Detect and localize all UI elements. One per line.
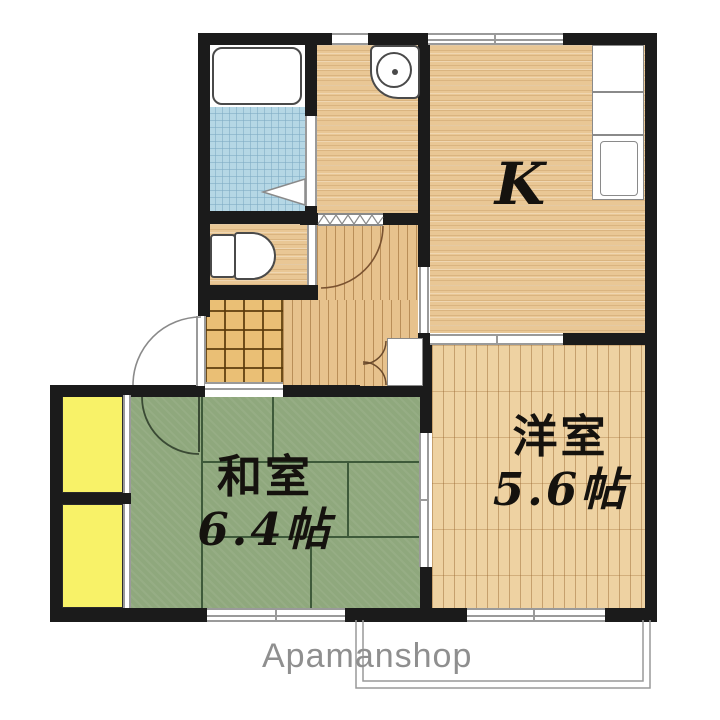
- entry-door-swing-arc: [133, 317, 201, 385]
- bathroom-floor: [208, 107, 305, 212]
- entry-door-leaf: [196, 316, 206, 386]
- apamanshop-watermark: Apamanshop: [262, 637, 472, 676]
- wall-segment: [198, 33, 210, 317]
- window-center-tick: [533, 610, 535, 620]
- bath-door-opening: [305, 116, 317, 206]
- window: [332, 33, 368, 45]
- toilet-tank: [210, 234, 236, 278]
- wall-segment: [198, 285, 318, 300]
- kitchen-stove: [600, 141, 638, 196]
- closet-lower: [62, 504, 123, 608]
- window: [467, 608, 605, 622]
- japanese-room-label: 和室 6.4帖: [150, 450, 380, 556]
- kitchen-door: [419, 267, 429, 333]
- toilet-door: [307, 225, 317, 285]
- western-room-label: 洋室 5.6帖: [448, 410, 673, 516]
- kitchen-label-text: K: [495, 150, 545, 218]
- sliding-door-kitchen-western: [430, 334, 563, 345]
- wall-segment: [420, 567, 432, 610]
- sliding-door-center-tick: [421, 499, 427, 501]
- window: [207, 608, 345, 622]
- closet-fusuma-upper: [123, 395, 131, 493]
- sliding-door-center-tick: [496, 336, 498, 343]
- closet-upper: [62, 395, 123, 493]
- bathtub: [212, 47, 302, 105]
- washbasin-drain: [392, 69, 398, 75]
- wall-segment: [563, 333, 657, 345]
- accordion-door: [318, 213, 383, 226]
- western-room-name: 洋室: [448, 410, 673, 463]
- closet-fusuma-lower: [123, 504, 131, 608]
- wall-segment: [355, 386, 432, 397]
- floor-plan: K 和室 6.4帖 洋室 5.6帖 Apamanshop: [0, 0, 720, 720]
- counter-divider: [593, 91, 643, 93]
- hall-storage-nook: [387, 338, 423, 386]
- wall-segment: [345, 608, 467, 622]
- wall-segment: [605, 608, 657, 622]
- wall-segment: [50, 493, 131, 504]
- window-sash-line: [467, 615, 605, 617]
- western-room-size: 5.6帖: [448, 463, 673, 516]
- window-center-tick: [275, 610, 277, 620]
- japanese-room-name: 和室: [150, 450, 380, 503]
- sliding-door-japanese-western: [419, 433, 429, 567]
- window: [428, 33, 563, 45]
- entry-step-threshold: [205, 382, 283, 390]
- kitchen-label: K: [455, 150, 585, 218]
- wall-segment: [563, 33, 657, 45]
- wall-segment: [418, 225, 430, 267]
- wall-segment: [50, 608, 207, 622]
- hallway-floor-upper: [317, 225, 418, 300]
- japanese-room-size: 6.4帖: [150, 503, 380, 556]
- wall-segment: [305, 43, 317, 118]
- wall-segment: [283, 385, 360, 397]
- counter-divider: [593, 134, 643, 136]
- entryway-tile-floor: [205, 300, 283, 388]
- wall-segment: [300, 213, 318, 225]
- wall-segment: [645, 33, 657, 622]
- window-center-tick: [494, 35, 496, 43]
- wall-segment: [383, 213, 430, 225]
